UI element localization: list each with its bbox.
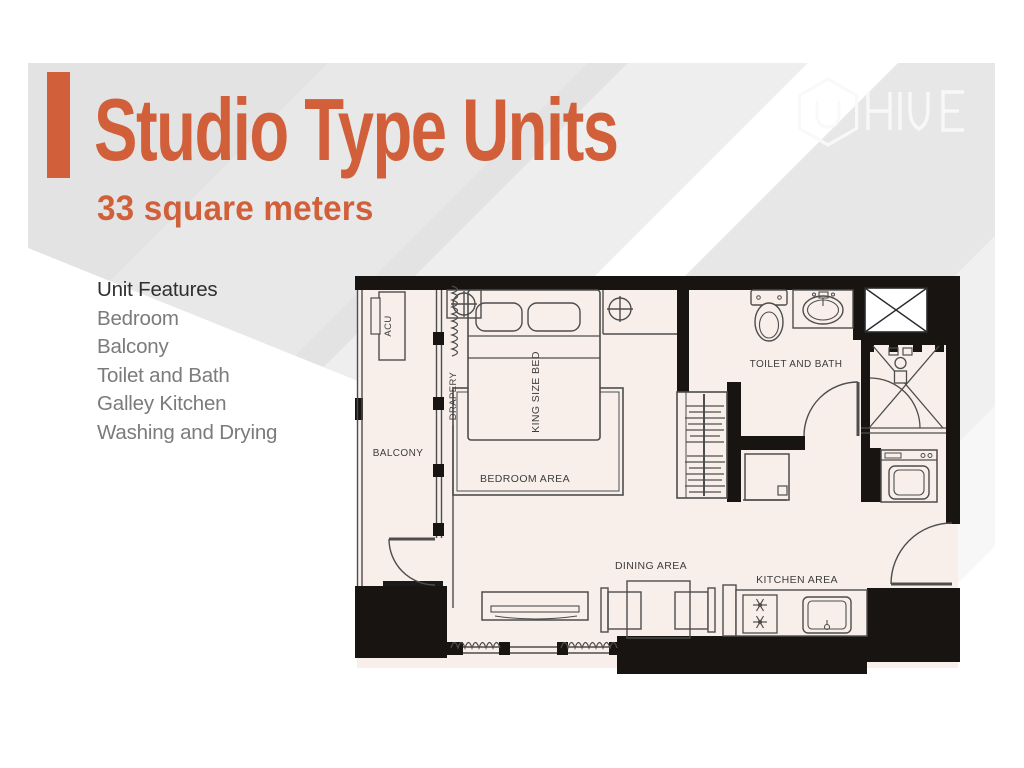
floor-plan: ACU DRAPERY BALCONY KING SIZE BED BEDROO… <box>355 270 960 675</box>
refrigerator <box>743 454 789 500</box>
chair <box>708 588 715 632</box>
washer-dryer <box>881 450 937 502</box>
kitchen-area-label: KITCHEN AREA <box>756 574 838 586</box>
console-table <box>482 592 588 620</box>
pillow <box>528 303 580 331</box>
hive-wordmark <box>868 92 964 130</box>
drapery-label: DRAPERY <box>448 371 459 420</box>
feature-item: Galley Kitchen <box>97 390 277 419</box>
slide-page: Studio Type Units 33 square meters Unit … <box>0 0 1024 768</box>
feature-item: Washing and Drying <box>97 419 277 448</box>
bedroom-area-label: BEDROOM AREA <box>480 473 570 485</box>
features-heading: Unit Features <box>97 276 277 305</box>
acu-label: ACU <box>383 315 394 336</box>
page-subtitle: 33 square meters <box>97 190 374 229</box>
dining-area-label: DINING AREA <box>615 560 687 572</box>
unit-features-list: Unit Features Bedroom Balcony Toilet and… <box>97 276 277 448</box>
feature-item: Balcony <box>97 333 277 362</box>
hive-logo <box>792 76 992 148</box>
feature-item: Bedroom <box>97 305 277 334</box>
hive-hexagon-icon <box>799 79 856 145</box>
kitchen-counter <box>723 585 867 636</box>
page-title: Studio Type Units <box>94 86 618 174</box>
pillow <box>476 303 522 331</box>
king-size-bed-label: KING SIZE BED <box>530 351 542 433</box>
chair <box>601 588 608 632</box>
shaft-box <box>865 288 927 332</box>
title-accent-bar <box>47 72 70 178</box>
balcony-label: BALCONY <box>373 448 424 459</box>
toilet-and-bath-label: TOILET AND BATH <box>750 359 843 370</box>
feature-item: Toilet and Bath <box>97 362 277 391</box>
wardrobe <box>677 392 727 498</box>
